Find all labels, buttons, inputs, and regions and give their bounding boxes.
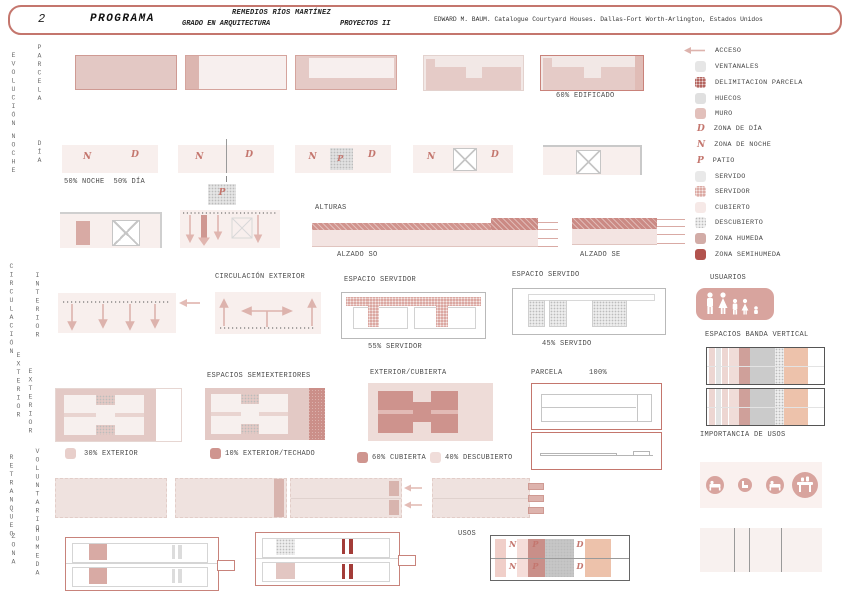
ref-line bbox=[657, 234, 685, 235]
servidor-swatch bbox=[695, 186, 706, 197]
letter-d: D bbox=[577, 539, 584, 549]
zona-dia-letter: D bbox=[697, 124, 705, 134]
side-label-exterior-2: EXTERIOR bbox=[27, 368, 34, 436]
legend-item-descubierto: DESCUBIERTO bbox=[684, 216, 844, 229]
exterior-swatch bbox=[65, 448, 76, 459]
plan-access-2 bbox=[180, 210, 280, 248]
legend-item-servidor: SERVIDOR bbox=[684, 185, 844, 198]
circulation-down-arrows-icon bbox=[58, 293, 176, 333]
banda-vertical-2 bbox=[706, 388, 825, 426]
usuarios-title: USUARIOS bbox=[710, 274, 746, 282]
side-label-dia: DÍA bbox=[36, 140, 43, 166]
letter-n: N bbox=[509, 561, 516, 571]
alzado-se-label: ALZADO SE bbox=[580, 251, 621, 259]
letter-p: P bbox=[532, 561, 538, 571]
humeda-plan-2 bbox=[255, 532, 400, 586]
legend-item-zona-semihumeda: ZONA SEMIHUMEDA bbox=[684, 248, 844, 261]
letter-d: D bbox=[368, 150, 376, 160]
side-label-noche: NOCHE bbox=[10, 133, 17, 176]
legend-item-delimitacion: DELIMITACION PARCELA bbox=[684, 76, 844, 89]
muro-swatch bbox=[695, 108, 706, 119]
retranqueo-diagram-1 bbox=[55, 478, 167, 518]
espacio-servidor-diagram bbox=[341, 292, 486, 339]
servidor-caption: 55% SERVIDOR bbox=[368, 343, 422, 351]
legend-label: HUECOS bbox=[715, 95, 741, 103]
author-name: REMEDIOS RÍOS MARTÍNEZ bbox=[232, 9, 331, 17]
circulacion-interior-diagram bbox=[58, 293, 176, 333]
sheet-number: 2 bbox=[38, 12, 45, 26]
bandas-title: ESPACIOS BANDA VERTICAL bbox=[705, 331, 809, 339]
legend-label: ACCESO bbox=[715, 47, 741, 55]
exterior-caption: 30% EXTERIOR bbox=[84, 450, 138, 458]
importancia-title: IMPORTANCIA DE USOS bbox=[700, 431, 786, 439]
legend-item-patio: P PATIO bbox=[684, 154, 844, 167]
ref-line bbox=[538, 246, 558, 247]
legend-item-servido: SERVIDO bbox=[684, 170, 844, 183]
course-label: PROYECTOS II bbox=[340, 20, 390, 28]
ventanales-swatch bbox=[695, 61, 706, 72]
huecos-swatch bbox=[695, 93, 706, 104]
cubierta-title: EXTERIOR/CUBIERTA bbox=[370, 369, 447, 377]
parcela-diagram-3 bbox=[295, 55, 397, 90]
techado-caption: 10% EXTERIOR/TECHADO bbox=[225, 450, 315, 458]
side-label-retranqueo: RETRANQUEO bbox=[8, 454, 15, 539]
ref-line bbox=[657, 226, 685, 227]
page-title: PROGRAMA bbox=[90, 13, 155, 25]
letter-n: N bbox=[83, 152, 91, 162]
usage-icons bbox=[700, 462, 822, 508]
bed-icon bbox=[766, 476, 784, 494]
usos-title: USOS bbox=[458, 530, 476, 538]
degree-label: GRADO EN ARQUITECTURA bbox=[182, 20, 270, 28]
retranqueo-diagram-3 bbox=[290, 478, 402, 518]
letter-n: N bbox=[427, 152, 435, 162]
legend-item-cubierto: CUBIERTO bbox=[684, 201, 844, 214]
retranqueo-diagram-4 bbox=[432, 478, 530, 518]
legend-item-zona-humeda: ZONA HUMEDA bbox=[684, 232, 844, 245]
retreat-arrow-icon bbox=[404, 484, 423, 492]
edificado-caption: 60% EDIFICADO bbox=[556, 92, 615, 100]
nd-diagram-1: N D bbox=[62, 145, 158, 173]
patio-square: P bbox=[208, 184, 236, 205]
legend-label: MURO bbox=[715, 110, 733, 118]
ref-line bbox=[657, 243, 685, 244]
entry-tab bbox=[398, 555, 416, 566]
legend-label: ZONA HUMEDA bbox=[715, 235, 763, 243]
descubierto-swatch-2 bbox=[430, 452, 441, 463]
chair-icon bbox=[738, 478, 752, 492]
acceso-arrow-icon bbox=[684, 46, 706, 55]
plan-access-1 bbox=[60, 212, 162, 248]
noche-dia-caption: 50% NOCHE 50% DÍA bbox=[64, 178, 145, 186]
exterior-plan-1 bbox=[55, 388, 182, 442]
letter-d: D bbox=[131, 150, 139, 160]
legend-label: SERVIDO bbox=[715, 173, 746, 181]
section-strip-box bbox=[700, 528, 822, 572]
servido-caption: 45% SERVIDO bbox=[542, 340, 592, 348]
techado-swatch bbox=[210, 448, 221, 459]
retreat-arrow-icon bbox=[404, 501, 423, 509]
retranqueo-diagram-2 bbox=[175, 478, 287, 518]
alturas-title: ALTURAS bbox=[315, 204, 347, 212]
usuarios-figure-box bbox=[696, 288, 774, 320]
letter-n: N bbox=[308, 152, 316, 162]
legend-label: ZONA DE NOCHE bbox=[714, 141, 771, 149]
header-bar: 2 PROGRAMA REMEDIOS RÍOS MARTÍNEZ GRADO … bbox=[8, 5, 842, 35]
nd-diagram-5 bbox=[543, 145, 642, 175]
exterior-plan-3 bbox=[368, 383, 493, 441]
ref-line bbox=[657, 219, 685, 220]
circulacion-exterior-diagram bbox=[215, 292, 321, 334]
legend-label: PATIO bbox=[713, 157, 735, 165]
letter-p: P bbox=[219, 188, 226, 198]
espacio-servido-diagram bbox=[512, 288, 666, 335]
nd-diagram-4: N D bbox=[413, 145, 513, 173]
letter-n: N bbox=[195, 152, 203, 162]
legend-label: ZONA DE DÍA bbox=[714, 125, 762, 133]
espacio-servidor-title: ESPACIO SERVIDOR bbox=[344, 276, 416, 284]
alzado-se-drawing bbox=[572, 216, 657, 246]
ref-line bbox=[538, 238, 558, 239]
side-label-zona: ZONA bbox=[10, 533, 17, 567]
humeda-plan-1 bbox=[65, 537, 219, 591]
table-icon bbox=[792, 472, 818, 498]
ref-line bbox=[538, 222, 558, 223]
side-label-evolucion: EVOLUCIÓN bbox=[10, 52, 17, 129]
family-icon bbox=[696, 288, 774, 320]
program-board: 2 PROGRAMA REMEDIOS RÍOS MARTÍNEZ GRADO … bbox=[0, 0, 848, 600]
acceso-arrow-icon bbox=[179, 298, 201, 308]
side-label-interior: INTERIOR bbox=[34, 272, 41, 340]
cubierta-caption: 60% CUBIERTA bbox=[372, 454, 426, 462]
usos-diagram: N N P P D D bbox=[490, 535, 630, 581]
descubierto-caption: 40% DESCUBIERTO bbox=[445, 454, 513, 462]
legend-label: DESCUBIERTO bbox=[715, 219, 763, 227]
parcela-100-section bbox=[531, 432, 662, 470]
retreat-tab bbox=[528, 495, 544, 502]
legend-label: VENTANALES bbox=[715, 63, 759, 71]
delimitacion-swatch bbox=[695, 77, 706, 88]
legend-label: ZONA SEMIHUMEDA bbox=[715, 251, 781, 259]
side-label-humeda: HUMEDA bbox=[34, 527, 41, 578]
parcela-100-plan bbox=[531, 383, 662, 430]
letter-d: D bbox=[577, 561, 584, 571]
legend-item-muro: MURO bbox=[684, 107, 844, 120]
parcela-diagram-4 bbox=[423, 55, 524, 91]
side-label-circulacion: CIRCULACIÓN bbox=[8, 263, 15, 357]
patio-connector bbox=[226, 176, 228, 182]
descubierto-swatch bbox=[695, 217, 706, 228]
ref-line bbox=[538, 229, 558, 230]
nd-diagram-2: N D bbox=[178, 145, 274, 173]
side-label-exterior-1: EXTERIOR bbox=[15, 352, 22, 420]
side-label-voluntario: VOLUNTARIO bbox=[34, 448, 41, 533]
nd-diagram-3: N P D bbox=[295, 145, 391, 173]
cubierta-swatch bbox=[357, 452, 368, 463]
reference-text: EDWARD M. BAUM. Catalogue Courtyard Hous… bbox=[434, 16, 763, 23]
legend-label: DELIMITACION PARCELA bbox=[715, 79, 803, 87]
banda-vertical-1 bbox=[706, 347, 825, 385]
letter-p: P bbox=[337, 153, 343, 163]
retreat-tab bbox=[528, 483, 544, 490]
parcela-diagram-1 bbox=[75, 55, 177, 90]
parcela-diagram-5 bbox=[540, 55, 644, 91]
patio-letter: P bbox=[697, 156, 704, 166]
alzado-so-drawing bbox=[312, 216, 538, 248]
letter-d: D bbox=[245, 150, 253, 160]
legend-item-zona-dia: D ZONA DE DÍA bbox=[684, 122, 844, 135]
letter-d: D bbox=[491, 150, 499, 160]
parcela-pct: 100% bbox=[589, 369, 607, 377]
bed-icon bbox=[706, 476, 724, 494]
retreat-tab bbox=[528, 507, 544, 514]
legend-item-huecos: HUECOS bbox=[684, 92, 844, 105]
zona-humeda-swatch bbox=[695, 233, 706, 244]
semiexteriores-title: ESPACIOS SEMIEXTERIORES bbox=[207, 372, 311, 380]
servido-swatch bbox=[695, 171, 706, 182]
letter-n: N bbox=[509, 539, 516, 549]
side-label-parcela: PARCELA bbox=[36, 44, 43, 104]
parcela-diagram-2 bbox=[185, 55, 287, 90]
exterior-plan-2 bbox=[205, 388, 325, 440]
alzado-so-label: ALZADO SO bbox=[337, 251, 378, 259]
cubierto-swatch bbox=[695, 202, 706, 213]
entry-tab bbox=[217, 560, 235, 571]
circulacion-exterior-title: CIRCULACIÓN EXTERIOR bbox=[215, 273, 305, 281]
importancia-icons-box bbox=[700, 462, 822, 508]
legend-item-ventanales: VENTANALES bbox=[684, 60, 844, 73]
zona-noche-letter: N bbox=[697, 140, 705, 150]
access-arrows-icon bbox=[180, 210, 280, 248]
legend-label: CUBIERTO bbox=[715, 204, 750, 212]
legend-item-acceso: ACCESO bbox=[684, 44, 844, 57]
espacio-servido-title: ESPACIO SERVIDO bbox=[512, 271, 580, 279]
parcela-title: PARCELA bbox=[531, 369, 563, 377]
legend-label: SERVIDOR bbox=[715, 188, 750, 196]
letter-p: P bbox=[532, 539, 538, 549]
zona-semihumeda-swatch bbox=[695, 249, 706, 260]
circulation-up-arrows-icon bbox=[215, 292, 321, 334]
legend-item-zona-noche: N ZONA DE NOCHE bbox=[684, 138, 844, 151]
